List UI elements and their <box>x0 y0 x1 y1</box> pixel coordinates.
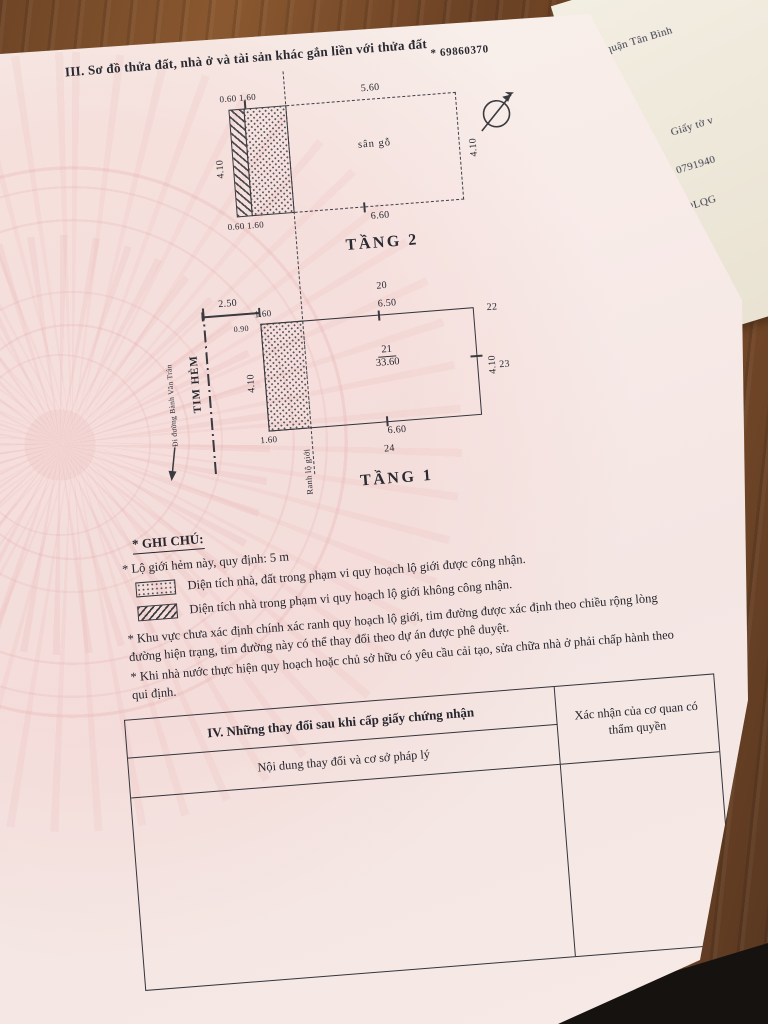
background-doc-line: 0791940 <box>675 153 717 176</box>
floor2-dim-top-left: 0.60 1.60 <box>219 92 256 105</box>
changes-table: IV. Những thay đổi sau khi cấp giấy chứn… <box>124 673 736 991</box>
notes-title: * GHI CHÚ: <box>132 531 205 555</box>
floor1-point-24: 24 <box>329 438 449 458</box>
alley-centerline-label: TIM HẺM <box>188 355 205 414</box>
section3-title: III. Sơ đồ thửa đất, nhà ở và tài sản kh… <box>64 36 427 80</box>
street-direction-arrow-icon <box>164 447 181 484</box>
north-arrow-icon <box>474 87 523 136</box>
floor1-dim-alley-half: 2.50 <box>197 296 258 312</box>
hatched-swatch <box>137 603 178 621</box>
floor1-dim-top-strip: 1.60 <box>254 308 272 319</box>
background-doc-line: quận Tân Bình <box>604 24 674 56</box>
tick-mark <box>378 311 380 321</box>
floor1-dim-left: 4.10 <box>245 374 257 394</box>
floor1-label: TẦNG 1 <box>311 463 482 494</box>
table-body-left-cell <box>131 765 575 990</box>
floor2-dim-left: 4.10 <box>214 159 226 179</box>
floor2-dim-right: 4.10 <box>467 138 479 158</box>
page-content: III. Sơ đồ thửa đất, nhà ở và tài sản kh… <box>0 0 768 1024</box>
floor1-dim-bottom-strip: 1.60 <box>260 434 278 445</box>
certificate-page: III. Sơ đồ thửa đất, nhà ở và tài sản kh… <box>0 0 768 1024</box>
floor1-point-23: 23 <box>499 358 510 370</box>
dim-line-alley-half <box>202 312 260 318</box>
floor1-dim-right: 4.10 <box>486 355 498 375</box>
dotted-swatch <box>135 579 176 597</box>
table-body-right-cell <box>561 752 735 956</box>
street-direction-label: Đi đường Bành Văn Trân <box>164 364 179 447</box>
background-doc-line: Giấy tờ v <box>669 114 715 138</box>
floor1-dim-left-small: 0.90 <box>233 324 249 334</box>
floor2-dim-bottom-left: 0.60 1.60 <box>227 219 264 232</box>
floor1-dotted-strip <box>260 321 311 432</box>
alley-centerline <box>202 308 217 476</box>
photo-of-land-certificate: { "doc": { "section_title": "III. Sơ đồ … <box>0 0 768 1024</box>
floor2-label: TẦNG 2 <box>297 227 468 258</box>
floor1-point-22: 22 <box>486 301 497 313</box>
certificate-number: * 69860370 <box>430 43 489 60</box>
table-col-authority: Xác nhận của cơ quan có thẩm quyền <box>554 674 719 764</box>
